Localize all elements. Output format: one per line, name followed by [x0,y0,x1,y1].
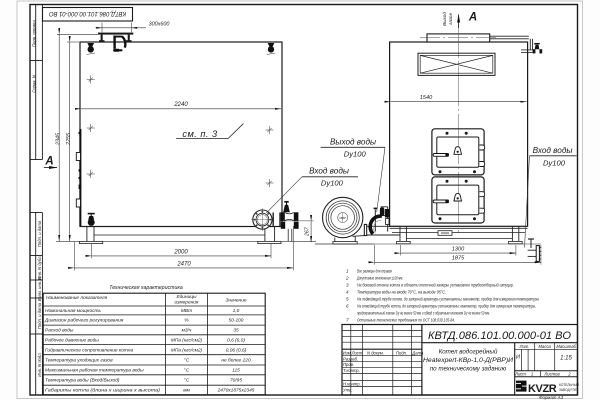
svg-text:1: 1 [531,371,533,376]
svg-text:Изм.: Изм. [343,350,352,355]
svg-text:115: 115 [232,368,240,374]
svg-text:1:15: 1:15 [560,356,572,362]
svg-text:Подп. и дата: Подп. и дата [37,220,42,247]
svg-text:°С: °С [184,368,190,374]
svg-text:мм: мм [183,389,190,394]
svg-text:Т.контр.: Т.контр. [343,368,360,373]
svg-text:4: 4 [346,290,349,295]
svg-text:Температура воды на входе 70°: Температура воды на входе 70°С, на выход… [357,290,446,295]
svg-text:2255: 2255 [66,132,72,146]
svg-text:Гидравлическое сопротивление к: Гидравлическое сопротивление котла [45,347,133,353]
svg-text:Остальные технические требован: Остальные технические требования по ОСТ … [357,318,455,323]
svg-text:1,0: 1,0 [233,308,240,314]
svg-text:35: 35 [233,328,239,334]
svg-text:300х600: 300х600 [149,22,170,28]
svg-text:2240: 2240 [173,102,188,108]
svg-text:°С: °С [184,378,190,384]
svg-text:Максимальная рабочая температу: Максимальная рабочая температура воды [45,368,144,374]
svg-text:Dy100: Dy100 [321,179,344,188]
svg-text:1: 1 [346,269,349,274]
svg-text:Температура уходящих газов: Температура уходящих газов [45,358,113,364]
svg-text:Все размеры для справок: Все размеры для справок [357,269,393,274]
svg-text:Техническая характеристика: Техническая характеристика [109,285,183,291]
svg-text:Dy100: Dy100 [344,150,367,159]
svg-text:Формат А3: Формат А3 [539,395,564,400]
svg-text:На подводящей трубе котла,: На подводящей трубе котла, до запорной а… [357,296,539,302]
svg-text:Номинальная мощность: Номинальная мощность [45,308,102,314]
svg-text:не более 220: не более 220 [221,358,251,364]
svg-text:Выход воды: Выход воды [330,138,376,147]
svg-text:ЗАВОД РЭП: ЗАВОД РЭП [559,388,578,392]
svg-text:1300: 1300 [452,247,465,253]
svg-text:N докум.: N докум. [367,350,384,355]
svg-text:3: 3 [346,283,349,288]
svg-text:2345: 2345 [55,132,61,146]
svg-text:5: 5 [346,297,349,302]
svg-text:КВТД.086.101.00.000-01 ВО: КВТД.086.101.00.000-01 ВО [49,10,126,16]
svg-text:Н.контр.: Н.контр. [343,381,361,386]
svg-text:Пров.: Пров. [343,362,354,367]
svg-text:КОТЕЛЬНЫЙ: КОТЕЛЬНЫЙ [559,383,580,387]
svg-text:по техническому заданию: по техническому заданию [430,366,507,373]
svg-text:Масса: Масса [539,344,552,349]
svg-text:267: 267 [304,226,310,237]
svg-text:Вход воды: Вход воды [309,167,349,176]
svg-text:Heatexpert-КВр-1,0-Д(РВР)И: Heatexpert-КВр-1,0-Д(РВР)И [423,357,514,364]
svg-text:На боковой стенке котла в обла: На боковой стенке котла в области топочн… [357,282,514,288]
svg-text:Расход воды: Расход воды [45,328,74,334]
svg-text:Перв. примен.: Перв. примен. [32,19,37,47]
svg-text:1875: 1875 [452,256,465,262]
svg-text:Температура воды (Вход/Выход): Температура воды (Вход/Выход) [45,378,120,384]
svg-text:6: 6 [346,304,349,309]
svg-text:Разраб.: Разраб. [343,356,358,361]
svg-text:2470х1875х2345: 2470х1875х2345 [217,388,255,394]
svg-text:2000: 2000 [173,249,188,255]
svg-text:Габариты котла (длина х ширина: Габариты котла (длина х ширина х высота) [45,388,160,394]
svg-text:°С: °С [184,358,190,364]
svg-text:Инв. N подл.: Инв. N подл. [37,352,42,376]
svg-text:Наименование показателя: Наименование показателя [46,295,108,301]
svg-text:%: % [184,318,189,324]
svg-text:Dy100: Dy100 [543,158,566,167]
svg-text:Выход: Выход [442,12,447,26]
svg-text:Инв. N дубл.: Инв. N дубл. [37,255,42,279]
svg-text:Лист: Лист [351,350,363,355]
svg-text:KVZR: KVZR [528,383,557,395]
svg-text:КВТД.086.101.00.000-01 ВО: КВТД.086.101.00.000-01 ВО [428,330,571,342]
svg-text:МПа (кгс/см2): МПа (кгс/см2) [171,337,203,343]
svg-text:2: 2 [345,276,349,281]
svg-text:м3/ч: м3/ч [182,328,192,334]
svg-text:Вход воды: Вход воды [533,146,573,155]
svg-text:Листов: Листов [543,371,560,376]
svg-text:50-100: 50-100 [229,318,244,324]
svg-text:Диапазон рабочего регулировани: Диапазон рабочего регулирования [44,318,124,324]
svg-text:измерения: измерения [174,301,198,306]
svg-text:Масштаб: Масштаб [556,344,576,349]
svg-text:2470: 2470 [176,261,191,267]
svg-text:1540: 1540 [420,95,433,101]
svg-text:МВт: МВт [181,308,192,314]
svg-text:Лист: Лист [514,371,526,376]
svg-text:На отводящей трубе котла, до з: На отводящей трубе котла, до запорной ар… [357,303,536,309]
svg-text:Взам. инв. N: Взам. инв. N [37,276,42,301]
svg-text:Значение: Значение [225,298,246,304]
svg-text:Рабочее давление воды: Рабочее давление воды [45,337,99,343]
svg-text:Подп.: Подп. [396,350,407,355]
svg-text:Справ. N: Справ. N [32,74,37,92]
svg-text:предохранительный клапан Dу н: предохранительный клапан Dу не менее 50 … [357,310,490,316]
svg-text:Подп. и дата: Подп. и дата [37,302,42,329]
svg-text:А: А [468,12,477,24]
svg-text:газов: газов [448,13,453,25]
svg-text:Допустимые отклонения ±100 мм: Допустимые отклонения ±100 мм. [356,276,403,281]
svg-text:Дата: Дата [411,350,424,355]
svg-text:А: А [44,156,53,168]
svg-text:Котел водогрейный: Котел водогрейный [439,349,498,356]
svg-text:И: И [516,355,520,361]
svg-text:0,06 (0,6): 0,06 (0,6) [226,347,247,353]
svg-text:Единицы: Единицы [176,294,197,300]
svg-text:МПа (кгс/см2): МПа (кгс/см2) [171,347,203,353]
svg-text:см. п. 3: см. п. 3 [182,129,218,139]
svg-text:7: 7 [346,318,349,323]
svg-text:Лит.: Лит. [519,344,530,349]
svg-text:0,6 (6,0): 0,6 (6,0) [227,337,245,343]
svg-text:70/95: 70/95 [230,378,242,384]
svg-text:Утв.: Утв. [343,387,353,392]
